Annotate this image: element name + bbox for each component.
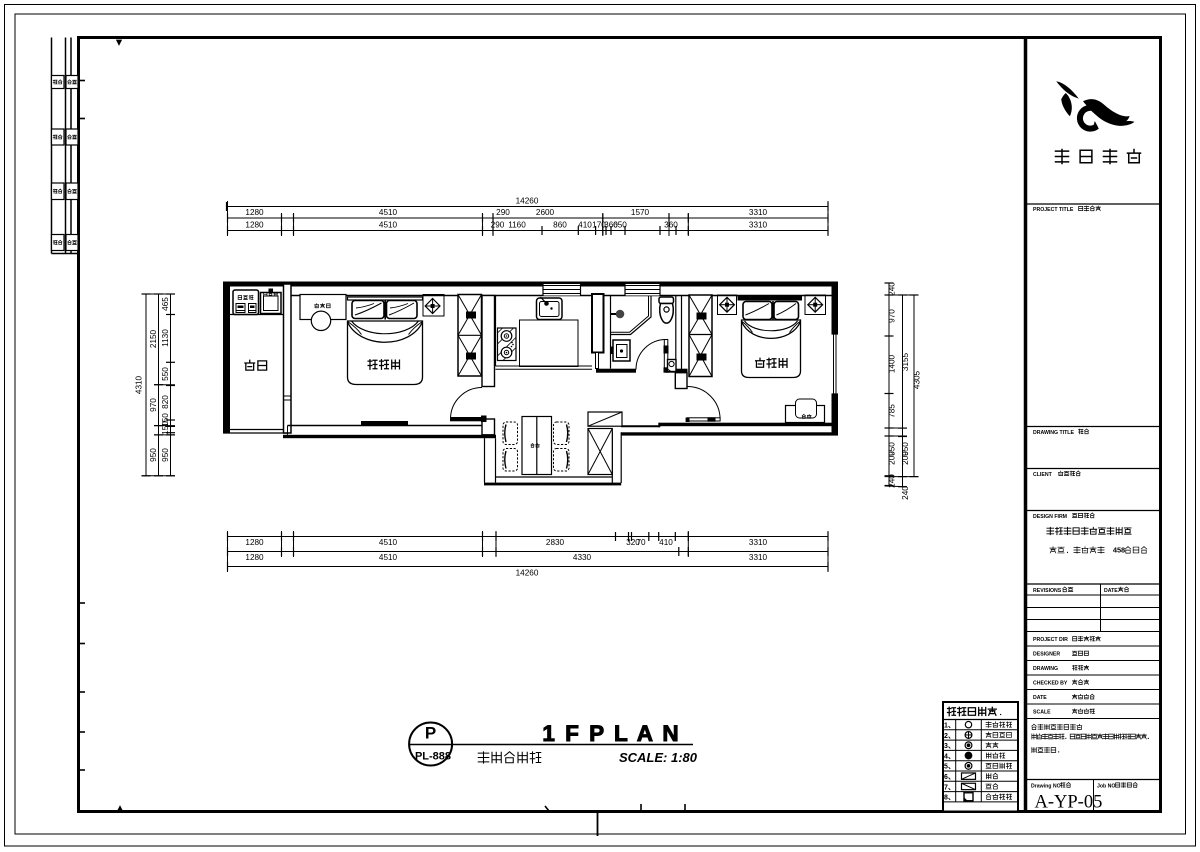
svg-text:A-YP-05: A-YP-05: [1035, 793, 1103, 813]
svg-text:Drawing NO: Drawing NO: [1031, 784, 1061, 790]
svg-text:3310: 3310: [749, 553, 768, 562]
svg-text:970: 970: [888, 309, 897, 323]
svg-text:1570: 1570: [631, 208, 650, 217]
svg-text:1280: 1280: [245, 553, 264, 562]
svg-text:4510: 4510: [379, 538, 398, 547]
svg-text:5、: 5、: [944, 764, 955, 771]
svg-text:DATE: DATE: [1104, 588, 1118, 594]
svg-text:360: 360: [664, 221, 678, 230]
svg-text:950: 950: [149, 448, 158, 462]
svg-text:CHECKED BY: CHECKED BY: [1033, 680, 1068, 686]
svg-text:950: 950: [161, 448, 170, 462]
svg-text:1280: 1280: [245, 538, 264, 547]
svg-text:4310: 4310: [135, 375, 144, 394]
svg-text:2、: 2、: [944, 733, 955, 740]
svg-text:3310: 3310: [749, 208, 768, 217]
svg-text:Job NO: Job NO: [1097, 784, 1115, 790]
svg-text:860: 860: [553, 221, 567, 230]
svg-text:290: 290: [496, 208, 510, 217]
svg-text:6、: 6、: [944, 774, 955, 781]
svg-text:SCALE: SCALE: [1033, 709, 1051, 715]
svg-text:3155: 3155: [901, 352, 910, 371]
svg-text:3310: 3310: [749, 538, 768, 547]
svg-text:240: 240: [888, 282, 897, 296]
svg-text:200: 200: [888, 451, 897, 465]
svg-text:2600: 2600: [536, 208, 555, 217]
svg-text:200: 200: [901, 451, 910, 465]
svg-text:4510: 4510: [379, 208, 398, 217]
svg-text:4510: 4510: [379, 553, 398, 562]
svg-text:785: 785: [888, 404, 897, 418]
svg-text:14260: 14260: [516, 569, 539, 578]
svg-text:DESIGN FIRM: DESIGN FIRM: [1033, 514, 1067, 520]
svg-text:DESIGNER: DESIGNER: [1033, 651, 1060, 657]
svg-text:CLIENT: CLIENT: [1033, 472, 1053, 478]
svg-text:150: 150: [161, 421, 170, 435]
svg-text:1160: 1160: [508, 221, 526, 230]
svg-text:DRAWING TITLE: DRAWING TITLE: [1033, 430, 1074, 436]
svg-text:2830: 2830: [546, 538, 565, 547]
svg-text:8、: 8、: [944, 795, 955, 802]
svg-text:465: 465: [161, 297, 170, 311]
svg-text:PL-888: PL-888: [415, 751, 451, 763]
svg-text:4305: 4305: [913, 370, 922, 389]
svg-text:P: P: [425, 724, 436, 743]
svg-text:70: 70: [636, 538, 646, 547]
svg-text:PROJECT DIR: PROJECT DIR: [1033, 637, 1068, 643]
svg-text:4330: 4330: [573, 553, 592, 562]
svg-text:14260: 14260: [516, 197, 539, 206]
svg-text:410: 410: [659, 538, 673, 547]
svg-text:SCALE: 1:80: SCALE: 1:80: [619, 750, 698, 765]
svg-text:1280: 1280: [245, 221, 264, 230]
svg-text:DRAWING: DRAWING: [1033, 666, 1058, 672]
svg-text:1 F P L A N: 1 F P L A N: [542, 721, 680, 746]
svg-text:820: 820: [161, 395, 170, 409]
svg-text:970: 970: [149, 398, 158, 412]
svg-text:REVISIONS: REVISIONS: [1033, 588, 1062, 594]
svg-text:550: 550: [161, 367, 170, 381]
svg-text:1400: 1400: [888, 354, 897, 373]
svg-text:4、: 4、: [944, 753, 955, 760]
svg-text:2150: 2150: [149, 329, 158, 348]
svg-text:1130: 1130: [161, 329, 170, 347]
svg-text:240: 240: [901, 486, 910, 500]
svg-text:4510: 4510: [379, 221, 398, 230]
svg-text:PROJECT TITLE: PROJECT TITLE: [1033, 207, 1074, 213]
svg-text:1280: 1280: [245, 208, 264, 217]
svg-text:7、: 7、: [944, 784, 955, 791]
svg-text:3、: 3、: [944, 743, 955, 750]
svg-text:410: 410: [578, 221, 592, 230]
svg-text:1、: 1、: [944, 722, 955, 729]
svg-text:458: 458: [1113, 546, 1125, 555]
svg-text:3310: 3310: [749, 221, 768, 230]
svg-text:650: 650: [613, 221, 627, 230]
svg-text:DATE: DATE: [1033, 695, 1047, 701]
